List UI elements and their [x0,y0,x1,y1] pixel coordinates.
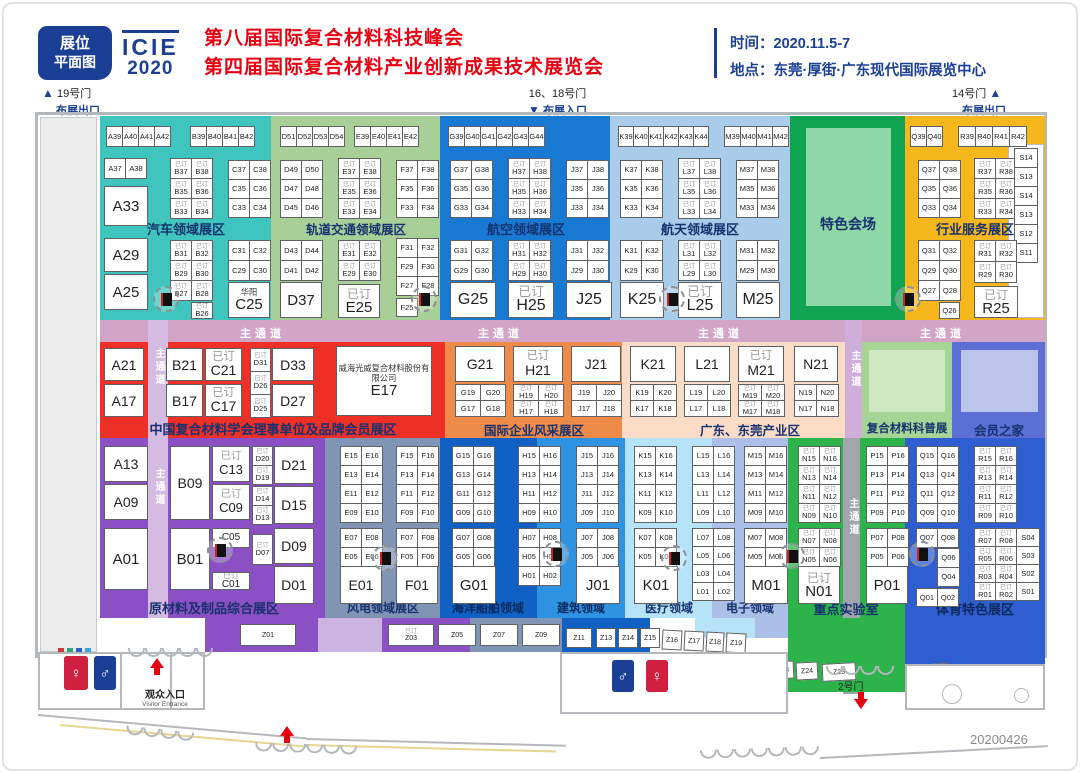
booth-D52: D52 [296,126,313,147]
booth-M40: M40 [740,126,757,147]
booth-M10: M10 [765,503,787,523]
booth-F08: F08 [417,528,439,548]
booth-id: J15 [581,452,593,460]
booth-D13: 已订D13 [252,505,273,525]
booth-N21: N21 [794,346,838,382]
booth-G08: G08 [473,528,495,548]
booth-id: K13 [638,471,651,479]
booth-id: B33 [174,208,187,216]
booth-G07: G07 [452,528,474,548]
booth-J19: J19 [571,384,597,401]
booth-Q02: Q02 [937,588,959,607]
booth-Q38: Q38 [939,160,961,180]
booth-D41: D41 [280,260,302,281]
booth-D46: D46 [301,198,323,218]
booth-G14: G14 [473,465,495,485]
booth-M13: M13 [744,465,766,485]
booth-G43: G43 [512,126,529,147]
red-down-arrow-icon [854,699,868,709]
booth-S13: S13 [1014,205,1038,225]
booth-id: L25 [687,298,714,314]
booth-P07: P07 [866,528,888,548]
booth-K43: K43 [678,126,694,147]
booth-id: Z01 [262,632,274,639]
z-strip-segment [755,618,788,638]
booth-E34: 已订E34 [359,198,381,219]
booth-L31: 已订L31 [678,240,700,261]
booth-A37: A37 [104,158,126,179]
booth-id: P16 [891,452,904,460]
booth-id: N20 [821,389,835,397]
booth-id: F05 [401,553,414,561]
booth-R33: 已订R33 [974,198,996,219]
booth-B30: 已订B30 [191,260,213,281]
booth-B21: B21 [166,348,203,381]
gate-2-arrow [854,692,868,709]
booth-id: B09 [178,476,203,490]
booth-id: M31 [740,247,755,255]
booth-id: F33 [401,204,414,212]
booth-F29: F29 [396,257,418,277]
booth-J09: J09 [576,503,598,523]
door-arcs [826,666,894,675]
booth-H02: H02 [539,566,561,586]
pillar-icon [909,541,935,567]
booth-id: Q02 [941,594,955,602]
booth-id: Z11 [573,635,585,642]
booth-id: C30 [253,267,267,275]
booth-id: J21 [585,357,608,371]
booth-id: J12 [602,490,614,498]
booth-J25: J25 [566,282,612,318]
booth-Q06: Q06 [937,548,960,568]
booth-id: F30 [422,263,435,271]
booth-id: G32 [475,247,489,255]
booth-L34: 已订L34 [699,198,721,219]
booth-J11: J11 [576,484,598,504]
booth-id: K01 [643,578,670,593]
booth-J05: J05 [576,547,598,567]
booth-id: Q06 [941,554,955,562]
booth-L11: L11 [692,484,714,504]
booth-G34: G34 [471,198,493,218]
booth-R37: 已订R37 [974,158,996,179]
aisle-label: 主通道 [698,325,743,341]
booth-id: B28 [195,290,208,298]
booth-id: J30 [592,267,604,275]
toilet-male-icon: ♂ [612,660,634,692]
booth-C38: C38 [249,160,271,180]
booth-id: M41 [757,133,772,141]
booth-id: N14 [823,474,837,482]
booth-id: B01 [177,552,204,567]
booth-id: L20 [713,389,726,397]
booth-B35: 已订B35 [170,178,192,199]
booth-id: E42 [404,133,417,141]
booth-id: M42 [773,133,788,141]
booth-id: L08 [718,534,731,542]
booth-id: E17 [371,383,398,398]
booth-id: B35 [174,188,187,196]
booth-id: Z03 [405,635,417,642]
booth-A33: A33 [104,186,148,226]
booth-id: Q14 [941,471,955,479]
booth-id: D26 [254,382,268,390]
booth-id: M29 [740,267,755,275]
booth-C09: 已订C09 [212,484,250,520]
booth-id: J13 [581,471,593,479]
booth-id: D51 [282,133,296,141]
booth-id: R05 [978,555,992,563]
booth-B29: 已订B29 [170,260,192,281]
booth-J35: J35 [566,179,588,199]
booth-id: P06 [891,553,904,561]
booth-G16: G16 [473,446,495,466]
booth-H35: 已订H35 [508,178,530,199]
booth-S14: S14 [1014,148,1038,168]
booth-id: H02 [543,572,557,580]
booth-id: F38 [422,166,435,174]
booth-id: Q08 [941,534,955,542]
booth-G40: G40 [464,126,481,147]
booth-id: C25 [235,297,263,312]
booth-id: M17 [743,408,758,416]
booth-id: Q28 [943,287,957,295]
booth-id: K19 [635,389,648,397]
booth-Z18: Z18 [705,632,724,653]
pillar-icon [543,541,569,567]
booth-D45: D45 [280,198,302,218]
booth-R11: 已订R11 [974,484,996,504]
booth-E31: 已订E31 [338,240,360,261]
booth-P09: P09 [866,503,888,523]
booth-H12: H12 [539,484,561,504]
booth-K17: K17 [630,400,654,417]
booth-J36: J36 [587,179,609,199]
booth-Q09: Q09 [916,503,938,523]
booth-id: B21 [172,358,197,372]
booth-id: G08 [477,534,491,542]
booth-id: G20 [486,389,500,397]
booth-id: F15 [401,452,414,460]
booth-id: P07 [870,534,883,542]
booth-id: J10 [602,509,614,517]
booth-id: Q09 [920,509,934,517]
booth-id: D07 [256,549,270,557]
booth-D07: 已订D07 [252,534,273,565]
booth-F14: F14 [417,465,439,485]
zone-label-sci-pop: 复合材料科普展 [860,420,954,436]
zone-label-guangdong-dongguan: 广东、东莞产业区 [662,420,838,439]
booth-id: K37 [624,166,637,174]
booth-D43: D43 [280,240,302,261]
booth-F05: F05 [396,547,418,567]
toilet-female-icon: ♀ [646,660,668,692]
booth-id: J19 [578,389,590,397]
booth-id: B26 [195,310,208,318]
booth-M29: M29 [736,260,758,281]
booth-id: K43 [679,133,692,141]
booth-id: D14 [256,495,270,503]
booth-id: J05 [581,553,593,561]
booth-D27: D27 [272,384,314,417]
booth-K41: K41 [648,126,664,147]
booth-K44: K44 [693,126,709,147]
booth-Q35: Q35 [918,179,940,199]
booth-id: D53 [314,133,328,141]
booth-M21: 已订M21 [738,346,784,382]
booth-id: H30 [533,270,547,278]
booth-id: K21 [641,357,666,371]
booth-id: D45 [284,204,298,212]
booth-K10: K10 [655,503,677,523]
booth-id: N10 [823,512,837,520]
booth-L19: L19 [684,384,708,401]
booth-B37: 已订B37 [170,158,192,179]
booth-H25: 已订H25 [508,282,554,318]
booth-id: Q33 [922,204,936,212]
booth-id: H05 [522,553,536,561]
booth-id: M38 [761,166,776,174]
booth-id: Z17 [688,637,700,645]
booth-id: J14 [602,471,614,479]
booth-id: A09 [114,495,139,509]
booth-id: D15 [281,498,307,512]
booth-id: N06 [823,556,837,564]
booth-id: L37 [683,168,696,176]
booth-id: D31 [254,359,268,367]
booth-P01: P01 [866,566,908,604]
booth-J31: J31 [566,240,588,261]
booth-C25: 华阳C25 [228,282,270,318]
booth-id: B31 [174,250,187,258]
booth-id: A39 [108,133,121,141]
booth-id: R34 [999,208,1013,216]
booth-id: L10 [718,509,731,517]
booth-Q14: Q14 [937,465,959,485]
booth-id: K34 [645,204,658,212]
booth-id: F34 [422,204,435,212]
booth-id: K17 [635,405,648,413]
booth-K20: K20 [653,384,677,401]
booth-id: F11 [401,490,413,498]
booth-M34: M34 [757,198,779,218]
booth-id: G18 [486,405,500,413]
booth-M12: M12 [765,484,787,504]
booth-R13: 已订R13 [974,465,996,485]
booth-L13: L13 [692,465,714,485]
booth-id: G07 [456,534,470,542]
booth-P11: P11 [866,484,888,504]
booth-J34: J34 [587,198,609,218]
booth-E09: E09 [340,503,362,523]
booth-Q28: Q28 [939,280,961,301]
booth-A29: A29 [104,238,148,272]
booth-R39: R39 [958,126,976,147]
booth-id: P09 [870,509,883,517]
booth-id: G40 [465,133,479,141]
booth-id: E37 [342,168,355,176]
booth-K37: K37 [620,160,642,180]
booth-N11: 已订N11 [798,484,820,504]
booth-id: S13 [1019,173,1032,181]
booth-D42: D42 [301,260,323,281]
booth-id: Z18 [709,638,721,646]
booth-id: F32 [422,244,435,252]
booth-Q36: Q36 [939,179,961,199]
booth-id: E07 [344,534,357,542]
booth-B36: 已订B36 [191,178,213,199]
booth-F30: F30 [417,257,439,277]
visitor-entrance-arrow [150,658,164,675]
aisle-label: 主通道 [478,325,523,341]
booth-id: A33 [113,199,140,214]
booth-id: H29 [512,270,526,278]
booth-L37: 已订L37 [678,158,700,179]
booked-tag: 已订 [527,351,549,362]
booth-id: P14 [891,471,904,479]
booth-id: C21 [211,363,237,377]
booth-G32: G32 [471,240,493,261]
booth-id: L06 [718,552,731,560]
booth-C35: C35 [228,179,250,199]
booth-S01: S01 [1016,582,1040,601]
booth-id: D46 [305,204,319,212]
booth-id: R42 [1011,133,1025,141]
booth-id: K32 [645,247,658,255]
booth-D49: D49 [280,160,302,180]
booth-id: G15 [456,452,470,460]
booked-tag: 已订 [984,289,1008,301]
booth-E12: E12 [361,484,383,504]
booth-L30: 已订L30 [699,260,721,281]
aisle-label: 主通道 [845,498,860,537]
booth-B41: B41 [222,126,239,147]
booth-id: E31 [342,250,355,258]
booth-N18: N18 [816,400,839,417]
booth-R25: 已订R25 [974,286,1018,318]
pillar-icon [411,286,437,312]
booth-A17: A17 [104,384,144,417]
booth-id: K12 [659,490,672,498]
red-up-arrow-icon [280,726,294,736]
booth-id: E01 [349,578,374,592]
booth-L33: 已订L33 [678,198,700,219]
booth-id: N13 [802,474,816,482]
booth-F06: F06 [417,547,439,567]
booth-Q04: Q04 [937,567,960,587]
booth-R30: 已订R30 [995,261,1017,283]
booth-R09: 已订R09 [974,503,996,523]
booth-id: F35 [401,185,414,193]
booth-F36: F36 [417,179,439,199]
booth-Q12: Q12 [937,484,959,504]
booth-B09: B09 [170,446,210,520]
booth-L20: L20 [707,384,731,401]
door-arcs [128,648,213,657]
booth-H07: H07 [518,528,540,548]
booth-id: Q26 [942,307,956,315]
booth-id: L03 [697,570,710,578]
booth-id: C31 [232,247,246,255]
booth-M11: M11 [744,484,766,504]
booth-L01: L01 [692,582,714,601]
booth-id: M25 [742,292,773,308]
booth-K36: K36 [641,179,663,199]
booth-id: G34 [475,204,489,212]
booth-id: Q12 [941,490,955,498]
booth-G15: G15 [452,446,474,466]
booth-E37: 已订E37 [338,158,360,179]
booth-S04: S04 [1016,528,1040,547]
booth-id: R06 [999,555,1013,563]
booth-id: M01 [751,578,780,593]
booth-id: R04 [999,573,1013,581]
booth-id: E34 [363,208,376,216]
booth-K39: K39 [618,126,634,147]
booth-id: H14 [543,471,557,479]
booth-M37: M37 [736,160,758,180]
booth-G19: G19 [455,384,481,401]
booth-id: R11 [978,493,991,501]
booth-id: J31 [571,247,583,255]
booth-id: K40 [634,133,647,141]
booth-id: L31 [683,250,696,258]
booth-M19: 已订M19 [738,384,762,401]
booth-id: E15 [344,452,357,460]
booth-id: K25 [628,292,656,308]
booth-J16: J16 [597,446,619,466]
booth-id: G31 [454,247,468,255]
booth-K32: K32 [641,240,663,261]
wall-top [35,112,1047,115]
booth-id: M20 [766,392,781,400]
booth-H21: 已订H21 [513,346,563,382]
booth-D09: D09 [274,528,314,564]
booth-id: R08 [999,537,1013,545]
booth-id: F01 [405,578,429,592]
booth-Q30: Q30 [939,260,961,281]
booth-D25: 已订D25 [250,394,271,418]
booth-id: M16 [769,452,784,460]
booth-id: C01 [222,580,240,590]
booth-M30: M30 [757,260,779,281]
booth-id: D47 [284,185,298,193]
booth-id: C34 [253,204,267,212]
booth-F33: F33 [396,198,418,218]
booth-E16: E16 [361,446,383,466]
booth-A39: A39 [106,126,123,147]
booth-J17: J17 [571,400,597,417]
booth-R31: 已订R31 [974,240,996,262]
booth-id: S13 [1019,211,1032,219]
booth-id: G13 [456,471,470,479]
booth-K40: K40 [633,126,649,147]
booth-id: Z13 [600,635,612,642]
booth-Q27: Q27 [918,280,940,301]
booth-R07: 已订R07 [974,528,996,547]
visitor-entrance-en: Visitor Entrance [120,701,210,708]
booth-D50: D50 [301,160,323,180]
booth-C36: C36 [249,179,271,199]
booth-id: H32 [533,250,547,258]
booth-id: E39 [356,133,369,141]
booth-id: S03 [1021,552,1034,560]
booth-id: Q34 [943,204,957,212]
booth-id: H36 [533,188,547,196]
aisle-label: 主通道 [240,325,285,341]
booth-id: M15 [748,452,763,460]
